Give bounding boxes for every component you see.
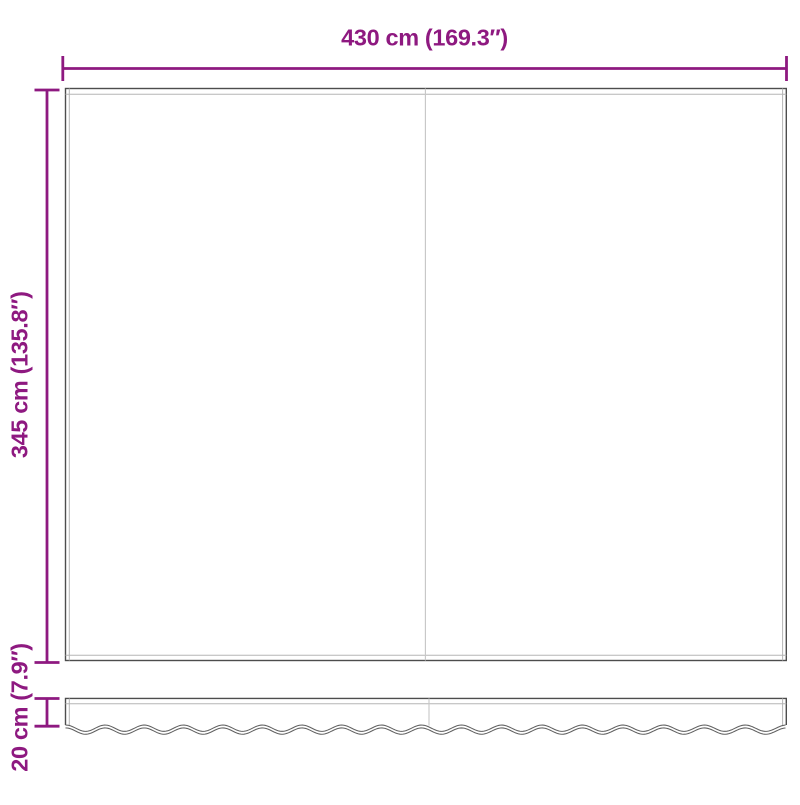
svg-text:430 cm (169.3″): 430 cm (169.3″) <box>341 25 508 51</box>
svg-text:20 cm (7.9″): 20 cm (7.9″) <box>6 643 32 772</box>
svg-text:345 cm (135.8″): 345 cm (135.8″) <box>6 291 32 458</box>
